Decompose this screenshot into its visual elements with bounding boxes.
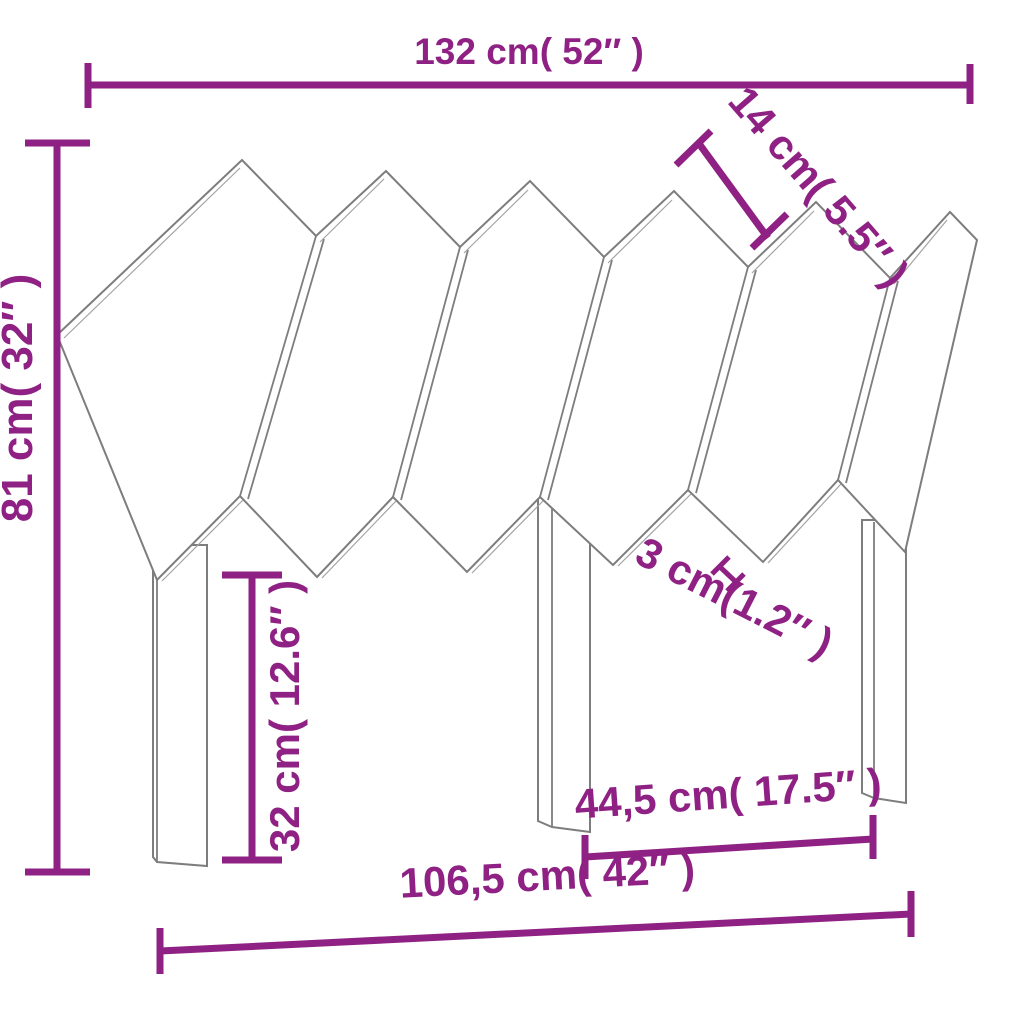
dim-slat-gap-label: 3 cm(1.2″ ) [629, 528, 841, 667]
diagram-canvas: 132 cm( 52″ ) 14 cm( 5.5″ ) 81 cm( 32″ )… [0, 0, 1024, 1024]
dim-leg-height-label: 32 cm( 12.6″ ) [261, 580, 308, 852]
dimension-diagram: 132 cm( 52″ ) 14 cm( 5.5″ ) 81 cm( 32″ )… [0, 0, 1024, 1024]
dim-leg-height: 32 cm( 12.6″ ) [222, 575, 308, 860]
dim-bottom-width: 106,5 cm( 42″ ) [160, 844, 911, 974]
dim-slat-gap: 3 cm(1.2″ ) [629, 528, 841, 667]
dim-total-height: 81 cm( 32″ ) [0, 143, 90, 872]
left-leg [153, 545, 207, 866]
dim-top-width: 132 cm( 52″ ) [88, 31, 970, 108]
dim-top-width-label: 132 cm( 52″ ) [414, 31, 644, 72]
dim-bottom-width-label: 106,5 cm( 42″ ) [398, 844, 696, 906]
dim-total-height-label: 81 cm( 32″ ) [0, 274, 42, 523]
dim-inner-leg-span-label: 44,5 cm( 17.5″ ) [573, 759, 883, 827]
